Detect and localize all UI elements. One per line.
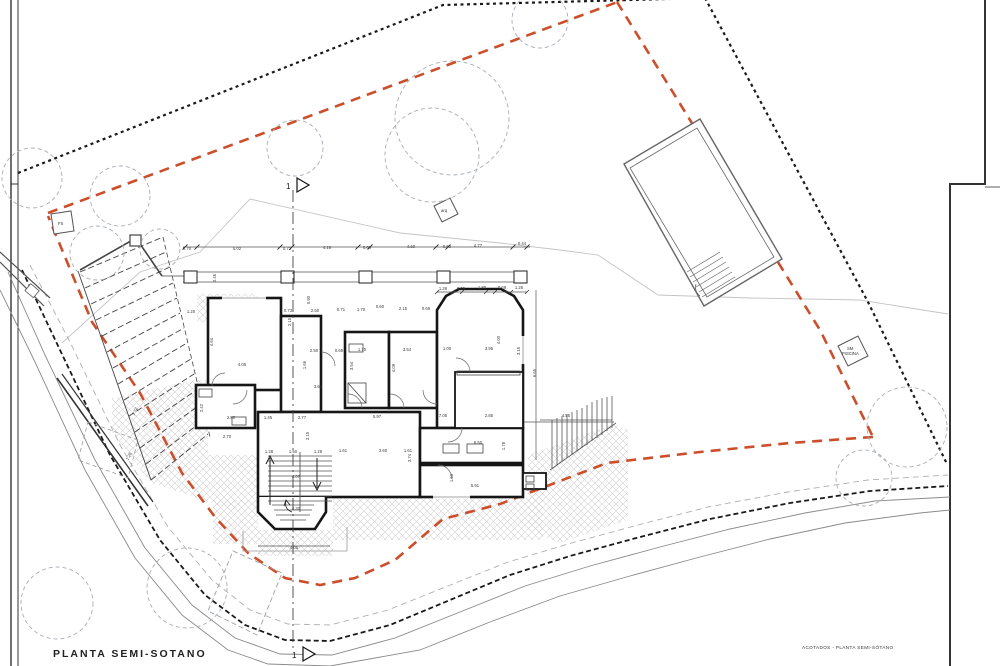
dimension-label: 1.45 xyxy=(264,415,273,420)
room-top-left xyxy=(208,298,281,390)
dimension-label: 1.80 xyxy=(478,285,487,290)
dimension-label: 4.30 xyxy=(292,506,301,511)
dimension-label: 0.72 xyxy=(283,246,292,251)
dimension-label: 3.74 xyxy=(407,453,412,462)
dimension-label: 1.61 xyxy=(404,448,413,453)
section-marker-bottom-icon xyxy=(303,647,315,661)
dimension-label: 3.54 xyxy=(349,361,354,370)
dimension-label: 4.64 xyxy=(209,337,214,346)
tree-circle xyxy=(385,108,479,202)
dimension-label: 1.66 xyxy=(302,360,307,369)
dimension-label: 5.91 xyxy=(471,483,480,488)
hall-stairs xyxy=(258,412,420,497)
arq-label: arq xyxy=(441,208,448,213)
dimension-label: 2.50 xyxy=(310,348,319,353)
dimension-label: 2.15 xyxy=(287,317,292,326)
dimension-label: 0.69 xyxy=(422,306,431,311)
plan-subtitle: ACOTADOS - PLANTA SEMI-SÓTANO xyxy=(802,644,894,650)
room-right-bump xyxy=(523,473,546,489)
dimension-label: 4.18 xyxy=(323,245,332,250)
dimension-label: 0.69 xyxy=(457,286,466,291)
dimension-label: 4.06 xyxy=(238,362,247,367)
dimension-label: 0.73 xyxy=(284,308,293,313)
dimension-label: 2.42 xyxy=(199,403,204,412)
dimension-label: 0.44 xyxy=(518,241,527,246)
plan-title: PLANTA SEMI-SOTANO xyxy=(53,648,207,660)
dimension-label: 2.15 xyxy=(399,306,408,311)
dimension-label: 1.28 xyxy=(265,449,274,454)
dimension-label: 2.85 xyxy=(485,413,494,418)
room-inner-right xyxy=(455,372,523,428)
dimension-label: 0.90 xyxy=(306,295,311,304)
dimension-label: 3.15 xyxy=(305,431,310,440)
dimension-label: 0.70 xyxy=(183,246,192,251)
road-curb-topleft-b xyxy=(0,262,44,306)
dimension-label: 1.60 xyxy=(449,473,454,482)
dimension-label: 4.09 xyxy=(391,363,396,372)
dimension-label: 3.15 xyxy=(516,346,521,355)
dimension-label: 5.97 xyxy=(373,414,382,419)
swimming-pool xyxy=(624,119,782,306)
tree-circle xyxy=(395,61,509,175)
dimension-label: 3.60 xyxy=(379,448,388,453)
section-number-bottom: 1 xyxy=(292,651,297,660)
dimension-label: 3.54 xyxy=(403,347,412,352)
tree-circle xyxy=(836,450,892,506)
dimension-label: 6.65 xyxy=(532,368,537,377)
dimension-label: 4.05 xyxy=(290,545,299,550)
dimension-label: 1.78 xyxy=(501,441,506,450)
section-number-top: 1 xyxy=(286,182,291,191)
pool-outer-wall xyxy=(624,119,782,306)
dimension-label: 2.80 xyxy=(227,415,236,420)
site-plan-canvas: 1 1 FS arq SM PISCINA 0.705.020.724.180.… xyxy=(0,0,1000,666)
dimension-label: 0.60 xyxy=(443,244,452,249)
dimension-label: 1.26 xyxy=(439,286,448,291)
section-marker-top-icon xyxy=(297,178,309,192)
dimension-label: 3.61 xyxy=(314,384,323,389)
room-center xyxy=(389,332,437,408)
dimension-label: 5.02 xyxy=(233,246,242,251)
dimension-label: 4.60 xyxy=(407,244,416,249)
fs-label: FS xyxy=(58,221,64,226)
tree-circle xyxy=(21,567,93,639)
dimension-label: 1.00 xyxy=(443,346,452,351)
dimension-label: 4.07 xyxy=(292,474,301,479)
dimension-label: 4.00 xyxy=(496,335,501,344)
dimension-label: 2.77 xyxy=(298,415,307,420)
dimension-label: 2.50 xyxy=(311,308,320,313)
dimension-label: 1.26 xyxy=(515,285,524,290)
dimension-label: 7.05 xyxy=(439,413,448,418)
dimension-label: 0.69 xyxy=(498,285,507,290)
dimension-label: 6.50 xyxy=(474,440,483,445)
dimension-label: 1.61 xyxy=(339,448,348,453)
dimension-label: 1.28 xyxy=(314,449,323,454)
dimension-label: 1.70 xyxy=(358,347,367,352)
dimension-label: 1.50 xyxy=(289,449,298,454)
dimension-label: 1.70 xyxy=(357,307,366,312)
dimension-label: 1.20 xyxy=(187,309,196,314)
bow-window xyxy=(258,497,326,529)
pergola-row xyxy=(183,271,527,283)
room-right-low xyxy=(420,465,523,497)
dimension-label: 4.77 xyxy=(474,243,483,248)
dimension-label: 0.71 xyxy=(337,307,346,312)
tree-circle xyxy=(867,387,947,467)
drawing-sheet: 1 1 FS arq SM PISCINA 0.705.020.724.180.… xyxy=(0,0,1000,666)
pool-meter-label-2: PISCINA xyxy=(842,351,859,356)
room-mid-left xyxy=(281,316,321,412)
dimension-label: 0.46 xyxy=(212,273,217,282)
dimension-label: 2.70 xyxy=(223,434,232,439)
tree-circle xyxy=(70,226,124,280)
dimension-label: 4.55 xyxy=(562,413,571,418)
room-right-mid xyxy=(420,428,523,463)
dimension-label: 3.95 xyxy=(485,346,494,351)
dimension-label: 0.60 xyxy=(363,245,372,250)
tree-circle xyxy=(140,229,180,269)
tree-circle xyxy=(90,166,150,226)
dimension-label: 0.60 xyxy=(376,304,385,309)
tree-circle xyxy=(147,548,227,628)
dimension-label: 0.69 xyxy=(335,348,344,353)
pergola-columns xyxy=(184,271,527,283)
